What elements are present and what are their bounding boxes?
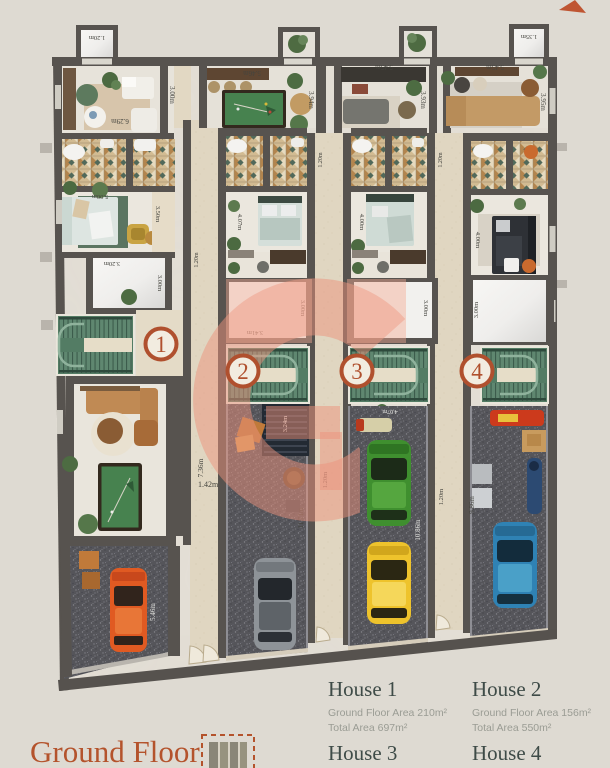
svg-text:1.20m: 1.20m bbox=[438, 152, 444, 168]
svg-text:Ground Floor: Ground Floor bbox=[30, 734, 200, 768]
svg-text:1.35m: 1.35m bbox=[521, 33, 537, 40]
svg-text:3.00m: 3.00m bbox=[156, 275, 163, 291]
svg-text:3.20m: 3.20m bbox=[104, 260, 120, 267]
svg-text:5.00m: 5.00m bbox=[92, 193, 108, 200]
svg-text:3.93m: 3.93m bbox=[419, 91, 427, 109]
svg-text:5.46m: 5.46m bbox=[243, 69, 261, 77]
svg-text:6.29m: 6.29m bbox=[111, 117, 129, 125]
svg-text:4.07m: 4.07m bbox=[382, 408, 398, 414]
svg-text:1.42m: 1.42m bbox=[198, 480, 219, 489]
svg-text:3.00m: 3.00m bbox=[422, 300, 429, 316]
svg-text:1.20m: 1.20m bbox=[194, 252, 200, 268]
svg-text:Total Area 697m²: Total Area 697m² bbox=[328, 722, 408, 734]
svg-text:3.50m: 3.50m bbox=[154, 206, 161, 222]
svg-text:3.00m: 3.00m bbox=[473, 302, 480, 318]
svg-text:5.45m: 5.45m bbox=[375, 63, 393, 71]
svg-text:4.07m: 4.07m bbox=[236, 214, 243, 230]
svg-text:House 3: House 3 bbox=[328, 741, 397, 765]
svg-text:Ground Floor Area 210m²: Ground Floor Area 210m² bbox=[328, 707, 448, 719]
svg-text:2: 2 bbox=[237, 359, 249, 384]
svg-text:1.20m: 1.20m bbox=[89, 34, 105, 41]
svg-text:1: 1 bbox=[155, 332, 167, 357]
svg-text:9.86m: 9.86m bbox=[468, 496, 476, 514]
svg-text:House 4: House 4 bbox=[472, 741, 542, 765]
svg-text:4.00m: 4.00m bbox=[358, 214, 365, 230]
svg-text:3: 3 bbox=[351, 359, 363, 384]
svg-text:1.20m: 1.20m bbox=[438, 489, 445, 505]
svg-text:Ground Floor Area 156m²: Ground Floor Area 156m² bbox=[472, 707, 592, 719]
svg-text:Total Area 550m²: Total Area 550m² bbox=[472, 722, 552, 734]
svg-text:3.94m: 3.94m bbox=[307, 91, 315, 109]
svg-text:4: 4 bbox=[471, 359, 483, 384]
svg-text:House 1: House 1 bbox=[328, 677, 397, 701]
svg-text:10.86m: 10.86m bbox=[414, 519, 422, 541]
svg-text:4.00m: 4.00m bbox=[474, 232, 481, 248]
svg-text:3.00m: 3.00m bbox=[168, 86, 176, 104]
svg-text:House 2: House 2 bbox=[472, 677, 541, 701]
svg-text:3.95m: 3.95m bbox=[539, 93, 547, 111]
svg-text:1.20m: 1.20m bbox=[318, 152, 324, 168]
svg-text:5.46m: 5.46m bbox=[149, 603, 157, 621]
svg-text:7.36m: 7.36m bbox=[196, 458, 205, 477]
svg-text:5.45m: 5.45m bbox=[486, 63, 504, 71]
